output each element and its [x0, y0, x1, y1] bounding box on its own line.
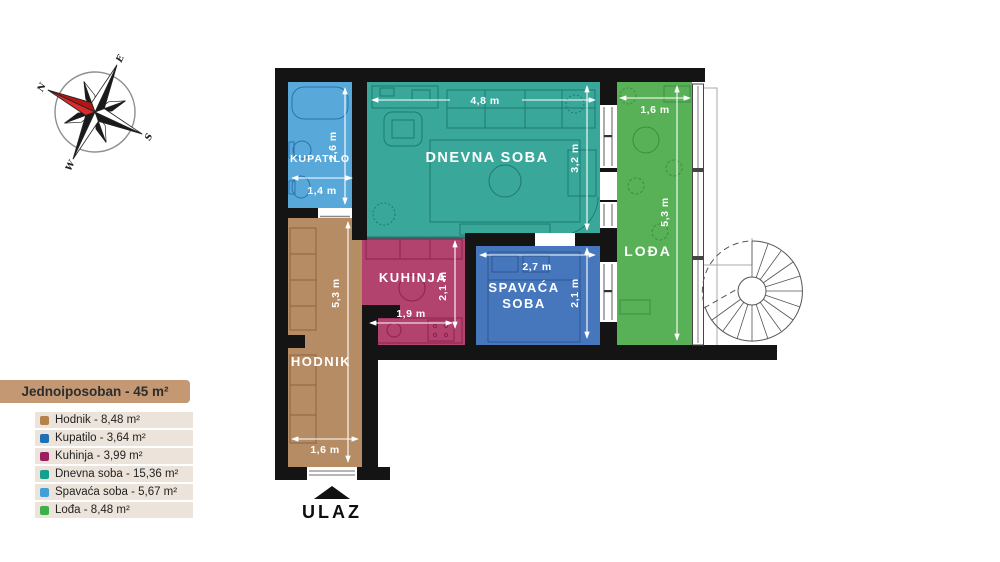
legend-item-label: Dnevna soba - 15,36 m² — [55, 468, 178, 480]
color-swatch-kupatilo — [40, 434, 49, 443]
wall — [275, 68, 288, 480]
door-opening-lodja — [600, 172, 617, 200]
door-opening-entrance — [307, 467, 357, 480]
window — [600, 262, 617, 322]
room-label-lodja: LOĐA — [624, 243, 672, 259]
compass-rose: N E S W — [33, 50, 158, 175]
dimension-label-hodnik-width: 1,6 m — [310, 444, 339, 456]
dimension-label-spavaca-height: 2,1 m — [569, 278, 581, 307]
color-swatch-kuhinja — [40, 452, 49, 461]
legend: Jednoiposoban - 45 m² Hodnik - 8,48 m² K… — [0, 380, 200, 520]
dimension-label-lodja-height: 5,3 m — [659, 197, 671, 226]
room-lodja — [617, 82, 692, 345]
wall — [362, 345, 777, 360]
door-opening-spavaca — [535, 233, 575, 246]
entrance-label: ULAZ — [302, 502, 362, 522]
legend-item-label: Hodnik - 8,48 m² — [55, 414, 140, 426]
wall — [465, 237, 476, 345]
room-label-dnevna-soba: DNEVNA SOBA — [425, 150, 548, 166]
legend-item-lodja: Lođa - 8,48 m² — [35, 502, 193, 518]
dimension-label-hodnik-height: 5,3 m — [330, 278, 342, 307]
compass-letter-w: W — [64, 158, 78, 172]
room-label-kuhinja: KUHINJA — [379, 270, 447, 285]
dimension-label-dnevna-height: 3,2 m — [569, 143, 581, 172]
wall — [288, 335, 305, 348]
compass-letter-s: S — [143, 132, 155, 143]
dimension-label-lodja-width: 1,6 m — [640, 104, 669, 116]
compass-letter-e: E — [114, 54, 126, 65]
wall — [275, 68, 705, 82]
dimension-label-kupatilo-width: 1,4 m — [307, 185, 336, 197]
legend-item-label: Kuhinja - 3,99 m² — [55, 450, 143, 462]
legend-title: Jednoiposoban - 45 m² — [0, 380, 190, 403]
room-label-spavaca-line1: SPAVAĆA — [488, 280, 559, 295]
color-swatch-spavaca-soba — [40, 488, 49, 497]
legend-item-label: Spavaća soba - 5,67 m² — [55, 486, 177, 498]
dimension-label-kuhinja-width: 1,9 m — [396, 308, 425, 320]
wall — [362, 305, 378, 480]
floor-plan-page: N E S W Jednoiposoban - 45 m² Hodnik - 8… — [0, 0, 1000, 562]
entrance-arrow-icon — [314, 486, 350, 499]
compass-long-points — [33, 50, 158, 175]
window — [600, 202, 617, 228]
legend-item-label: Lođa - 8,48 m² — [55, 504, 130, 516]
color-swatch-lodja — [40, 506, 49, 515]
compass-letter-n: N — [36, 81, 49, 94]
legend-item-kuhinja: Kuhinja - 3,99 m² — [35, 448, 193, 464]
legend-item-hodnik: Hodnik - 8,48 m² — [35, 412, 193, 428]
legend-item-kupatilo: Kupatilo - 3,64 m² — [35, 430, 193, 446]
legend-item-label: Kupatilo - 3,64 m² — [55, 432, 146, 444]
room-label-spavaca-line2: SOBA — [502, 296, 546, 311]
legend-items: Hodnik - 8,48 m² Kupatilo - 3,64 m² Kuhi… — [35, 412, 200, 518]
color-swatch-dnevna-soba — [40, 470, 49, 479]
dimension-label-spavaca-width: 2,7 m — [522, 261, 551, 273]
legend-item-dnevna-soba: Dnevna soba - 15,36 m² — [35, 466, 193, 482]
loggia-glazing — [692, 84, 704, 345]
color-swatch-hodnik — [40, 416, 49, 425]
dimension-label-dnevna-width: 4,8 m — [470, 95, 499, 107]
room-label-hodnik: HODNIK — [291, 354, 351, 369]
legend-item-spavaca-soba: Spavaća soba - 5,67 m² — [35, 484, 193, 500]
window — [600, 105, 617, 168]
floor-plan: 4,8 m 3,2 m 2,6 m 1,4 m 1,6 m 5,3 m 2,1 … — [260, 40, 840, 545]
room-label-kupatilo: KUPATILO — [290, 153, 350, 165]
